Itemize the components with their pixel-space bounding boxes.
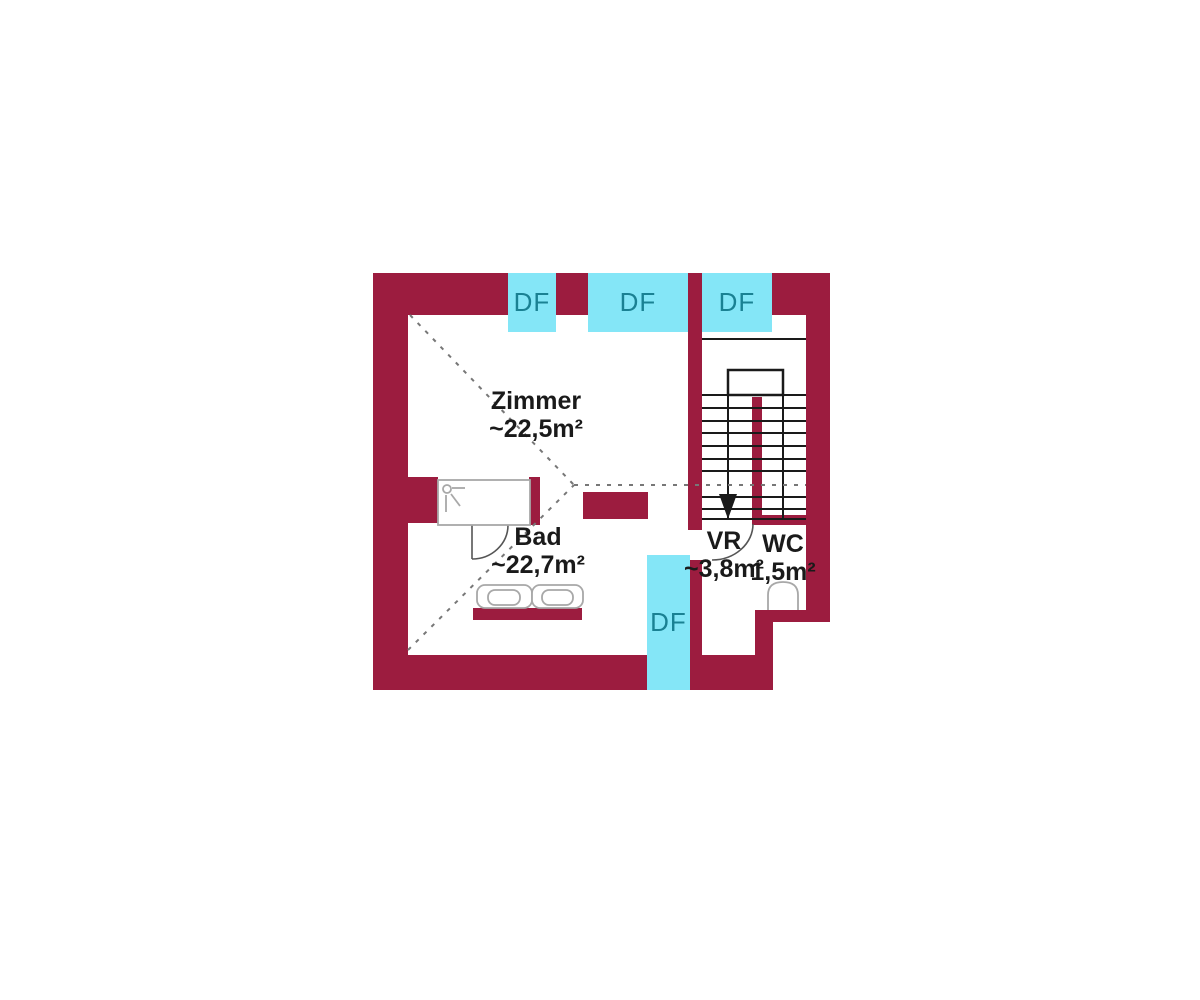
shower-head-icon — [443, 485, 451, 493]
room-area: ~22,7m² — [491, 551, 585, 579]
roof-window-label: DF — [514, 287, 551, 318]
wall-step-strip — [755, 610, 773, 690]
floor-plan: DF DF DF DF — [0, 0, 1200, 1000]
room-label-bad: Bad ~22,7m² — [491, 523, 585, 579]
stair-landing — [728, 370, 783, 395]
room-label-wc: WC 1,5m² — [750, 530, 815, 586]
roof-window-label: DF — [620, 287, 657, 318]
wall-top-left — [373, 273, 508, 315]
wall-left — [373, 273, 408, 690]
wall-stair-bottom-band — [752, 515, 806, 525]
ceiling-height-dashed-lines — [408, 315, 806, 650]
shower — [438, 480, 530, 525]
room-name: Zimmer — [489, 387, 583, 415]
wall-bad-stub-left — [408, 477, 438, 523]
wall-bad-stub-right — [529, 477, 540, 525]
roof-window-top-middle: DF — [588, 273, 688, 332]
toilet — [768, 582, 798, 610]
wall-zimmer-stair-upper — [688, 273, 702, 530]
room-area: 1,5m² — [750, 558, 815, 586]
room-name: WC — [750, 530, 815, 558]
stairs-down-arrow-icon — [719, 494, 737, 519]
room-area: ~22,5m² — [489, 415, 583, 443]
wall-top-right — [772, 273, 806, 315]
roof-window-top-right: DF — [702, 273, 772, 332]
sink-counter-strip — [473, 608, 582, 620]
wall-bottom-vr — [702, 655, 755, 690]
roof-window-top-left: DF — [508, 273, 556, 332]
room-label-zimmer: Zimmer ~22,5m² — [489, 387, 583, 443]
wall-bottom — [373, 655, 647, 690]
wall-stair-divider — [752, 397, 762, 518]
wall-wc-bottom — [755, 610, 830, 622]
room-name: Bad — [491, 523, 585, 551]
roof-window-label: DF — [719, 287, 756, 318]
wall-top-middle — [556, 273, 588, 315]
roof-window-label: DF — [650, 607, 687, 638]
double-sink — [477, 585, 583, 608]
wall-central-stub — [583, 492, 648, 519]
